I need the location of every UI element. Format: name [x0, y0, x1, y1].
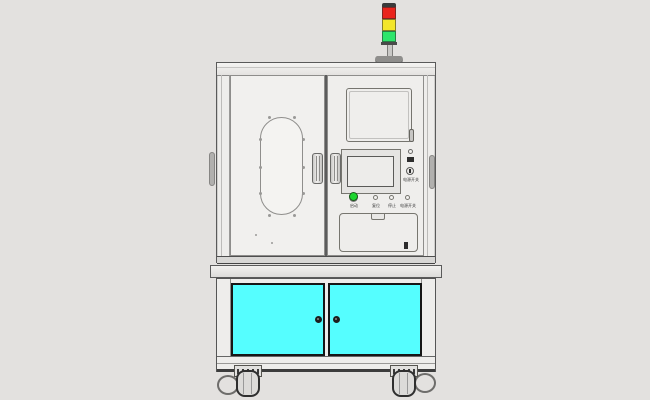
access-window	[346, 88, 412, 142]
upper-right-panel: 电源开关 启动 复位 停止 电源开关	[327, 75, 424, 256]
power-button-label: 电源开关	[393, 203, 423, 208]
wheel-tread	[399, 373, 408, 394]
window-clip	[259, 192, 262, 195]
lower-cabinet	[216, 278, 436, 372]
tower-red-light	[382, 7, 396, 19]
keyhole-slot	[409, 169, 411, 173]
machine-scene: 电源开关 启动 复位 停止 电源开关	[0, 0, 650, 400]
access-window-inner-frame	[349, 91, 409, 139]
door-knob-right	[333, 316, 340, 323]
window-latch	[409, 129, 414, 142]
window-clip	[268, 116, 271, 119]
frame-profile-line	[221, 75, 222, 256]
caster-front-left	[217, 365, 271, 399]
window-clip	[268, 214, 271, 217]
left-door-handle	[312, 153, 323, 184]
right-door-handle	[330, 153, 341, 184]
door-knob-left	[315, 316, 322, 323]
window-clip	[259, 138, 262, 141]
top-bar-seam	[217, 67, 435, 68]
stop-button	[389, 195, 394, 200]
wheel-tread	[243, 373, 252, 394]
window-clip	[302, 166, 305, 169]
touch-screen-bezel	[341, 149, 401, 194]
tower-green-light	[382, 31, 396, 42]
service-hatch	[339, 213, 418, 252]
window-clip	[302, 138, 305, 141]
mid-rail	[210, 265, 442, 278]
power-button	[405, 195, 410, 200]
frame-profile-line	[427, 75, 428, 256]
upper-left-door	[230, 75, 325, 256]
power-switch-label: 电源开关	[396, 177, 426, 182]
hatch-latch-tab	[371, 213, 385, 220]
knob-center	[317, 318, 319, 320]
frame-column-left	[217, 75, 230, 256]
start-button	[349, 192, 358, 201]
side-grip-left	[209, 152, 215, 186]
caster-wheel	[236, 370, 260, 397]
knob-center	[335, 318, 337, 320]
oval-viewing-window	[260, 117, 303, 215]
caster-wheel	[392, 370, 416, 397]
caster-front-right	[383, 363, 437, 397]
panel-screw	[271, 242, 273, 244]
touch-screen	[347, 156, 394, 187]
usb-port	[407, 157, 414, 162]
lower-cyan-door-right	[328, 283, 422, 356]
tower-yellow-light	[382, 19, 396, 31]
power-key-switch	[406, 167, 414, 175]
window-clip	[293, 116, 296, 119]
handle-groove	[316, 156, 320, 181]
reset-button	[373, 195, 378, 200]
lower-cyan-door-left	[231, 283, 325, 356]
aux-button	[408, 149, 413, 154]
signal-tower	[381, 3, 397, 45]
window-clip	[302, 192, 305, 195]
start-button-label: 启动	[343, 203, 365, 208]
handle-groove	[334, 156, 338, 181]
panel-screw	[255, 234, 257, 236]
window-clip	[259, 166, 262, 169]
window-clip	[293, 214, 296, 217]
side-grip-right	[429, 155, 435, 189]
upper-cabinet: 电源开关 启动 复位 停止 电源开关	[216, 62, 436, 263]
hatch-lock	[404, 242, 408, 249]
cabinet-bottom-band	[217, 256, 435, 264]
